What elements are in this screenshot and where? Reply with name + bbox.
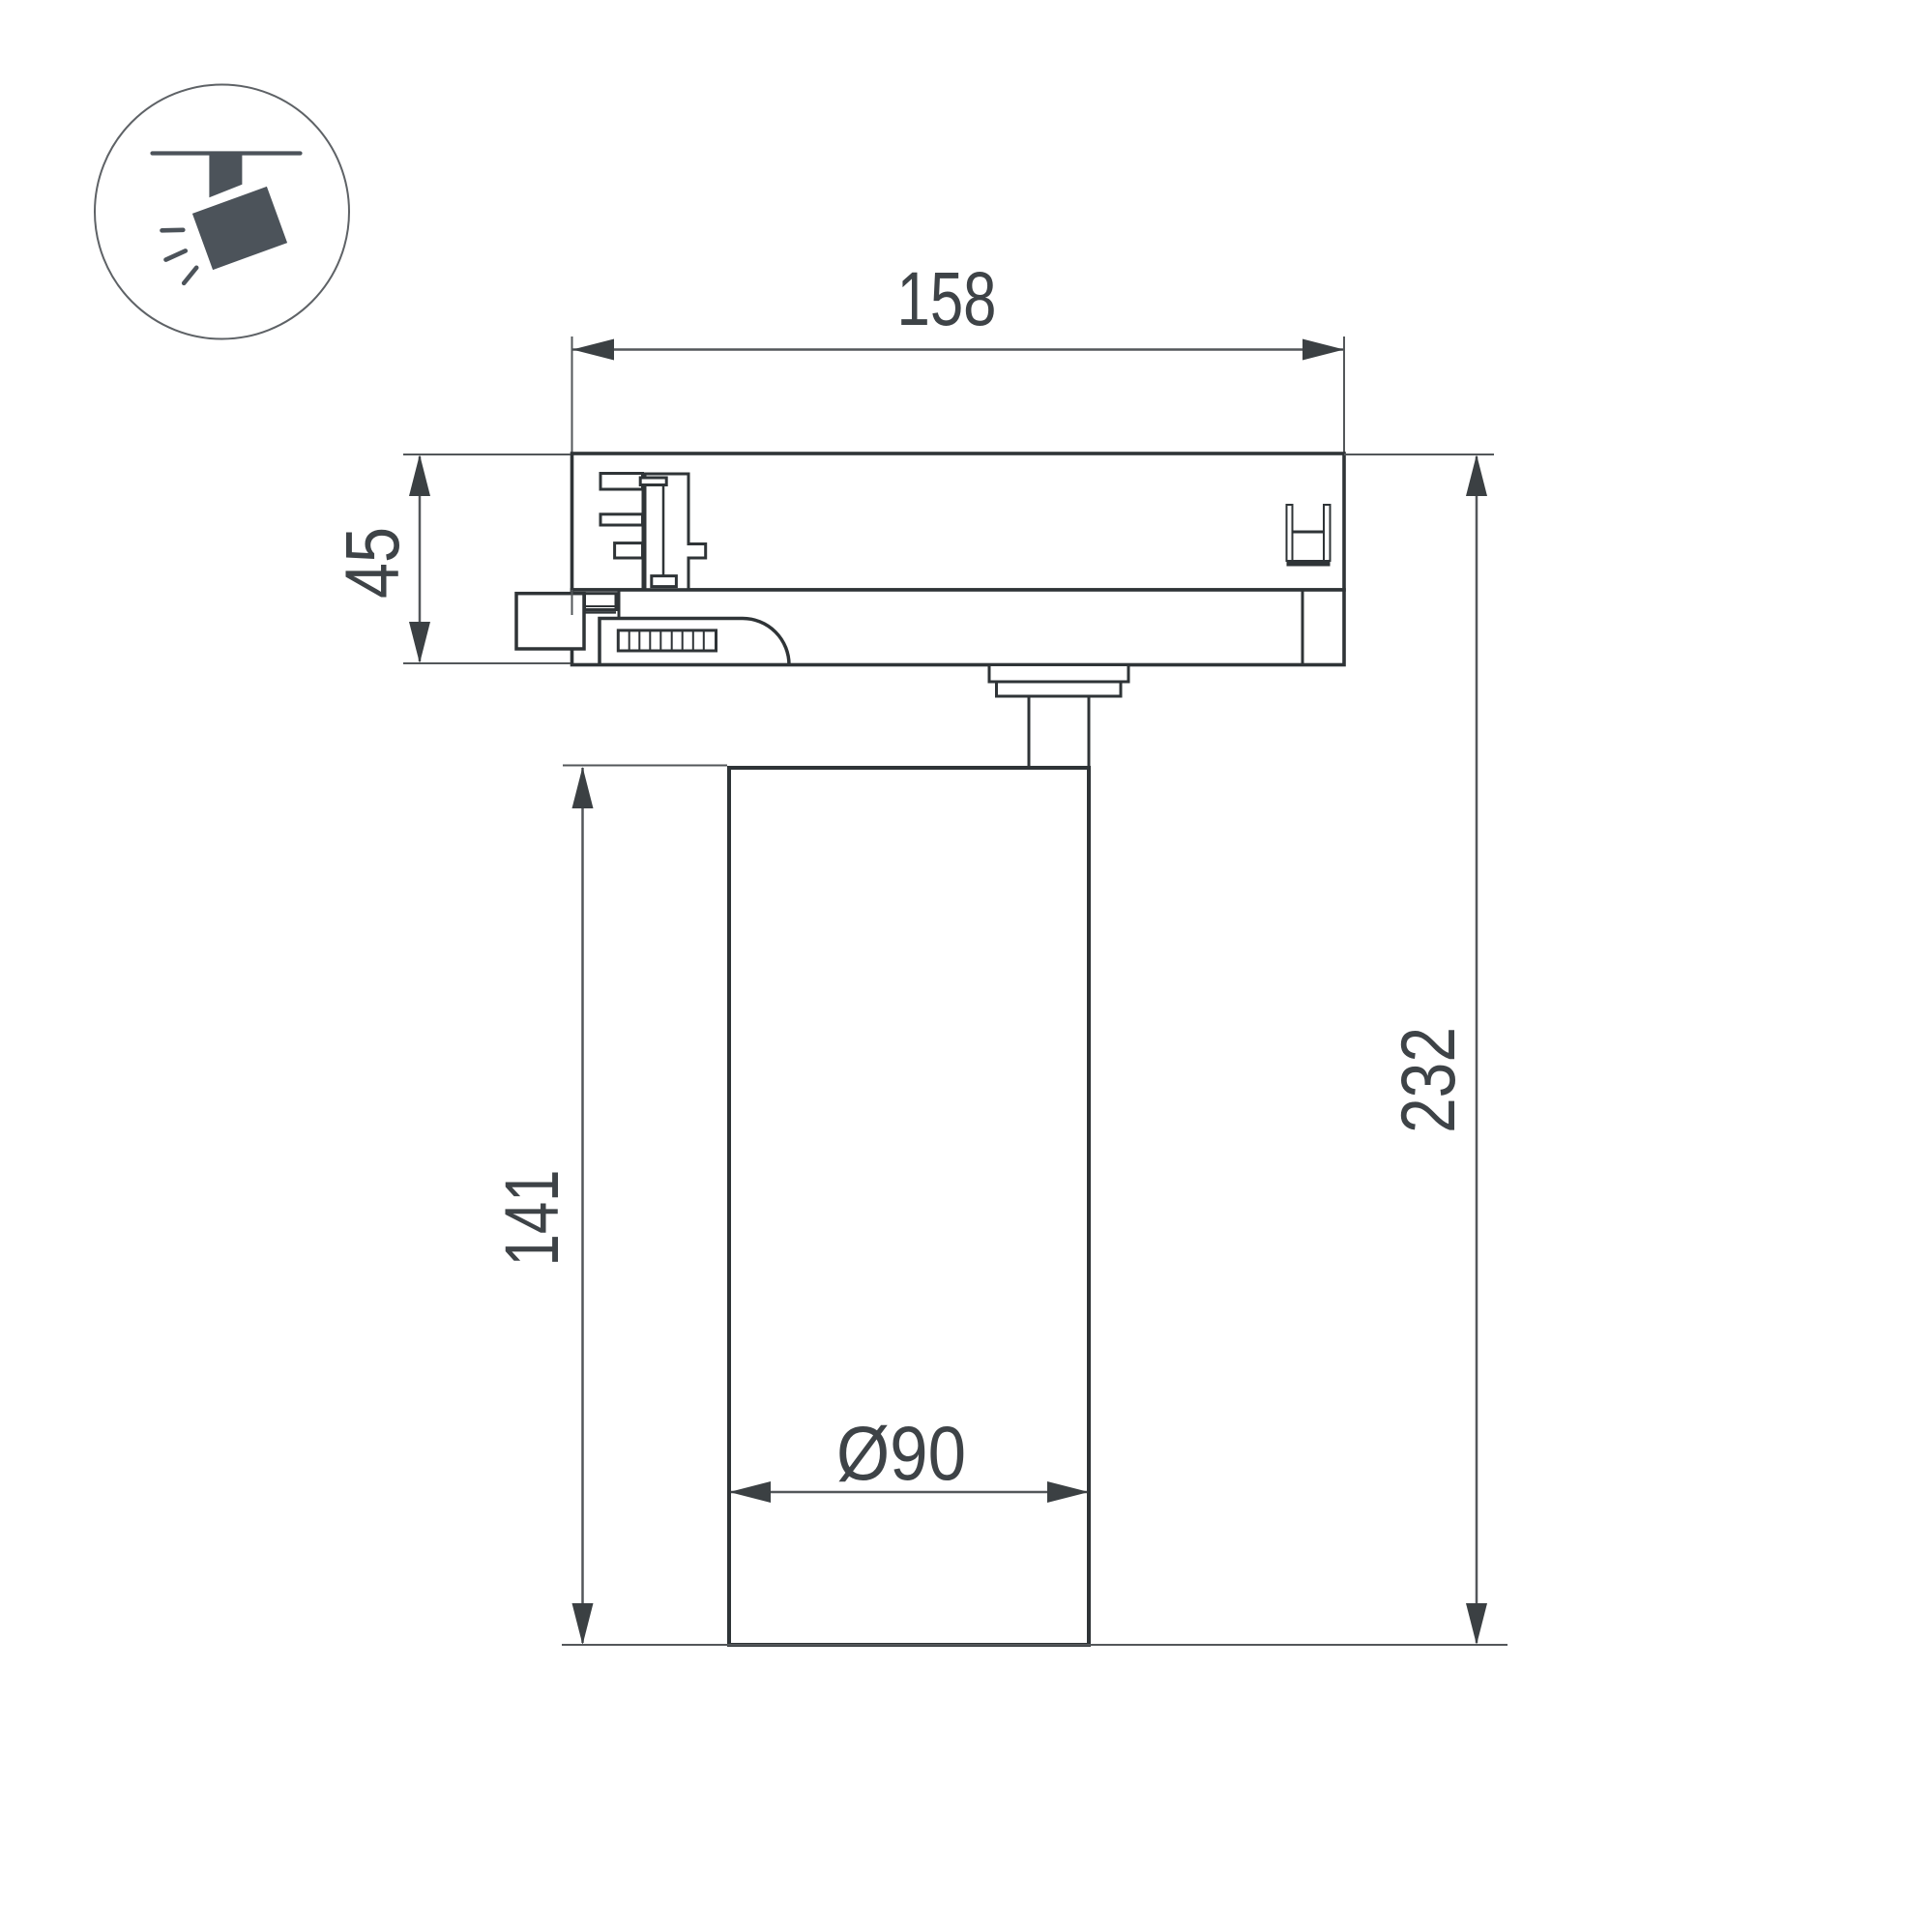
svg-text:141: 141 (488, 1170, 574, 1267)
svg-text:45: 45 (329, 527, 415, 599)
svg-text:Ø90: Ø90 (836, 1410, 966, 1496)
svg-text:158: 158 (897, 255, 997, 341)
svg-text:232: 232 (1385, 1027, 1471, 1133)
